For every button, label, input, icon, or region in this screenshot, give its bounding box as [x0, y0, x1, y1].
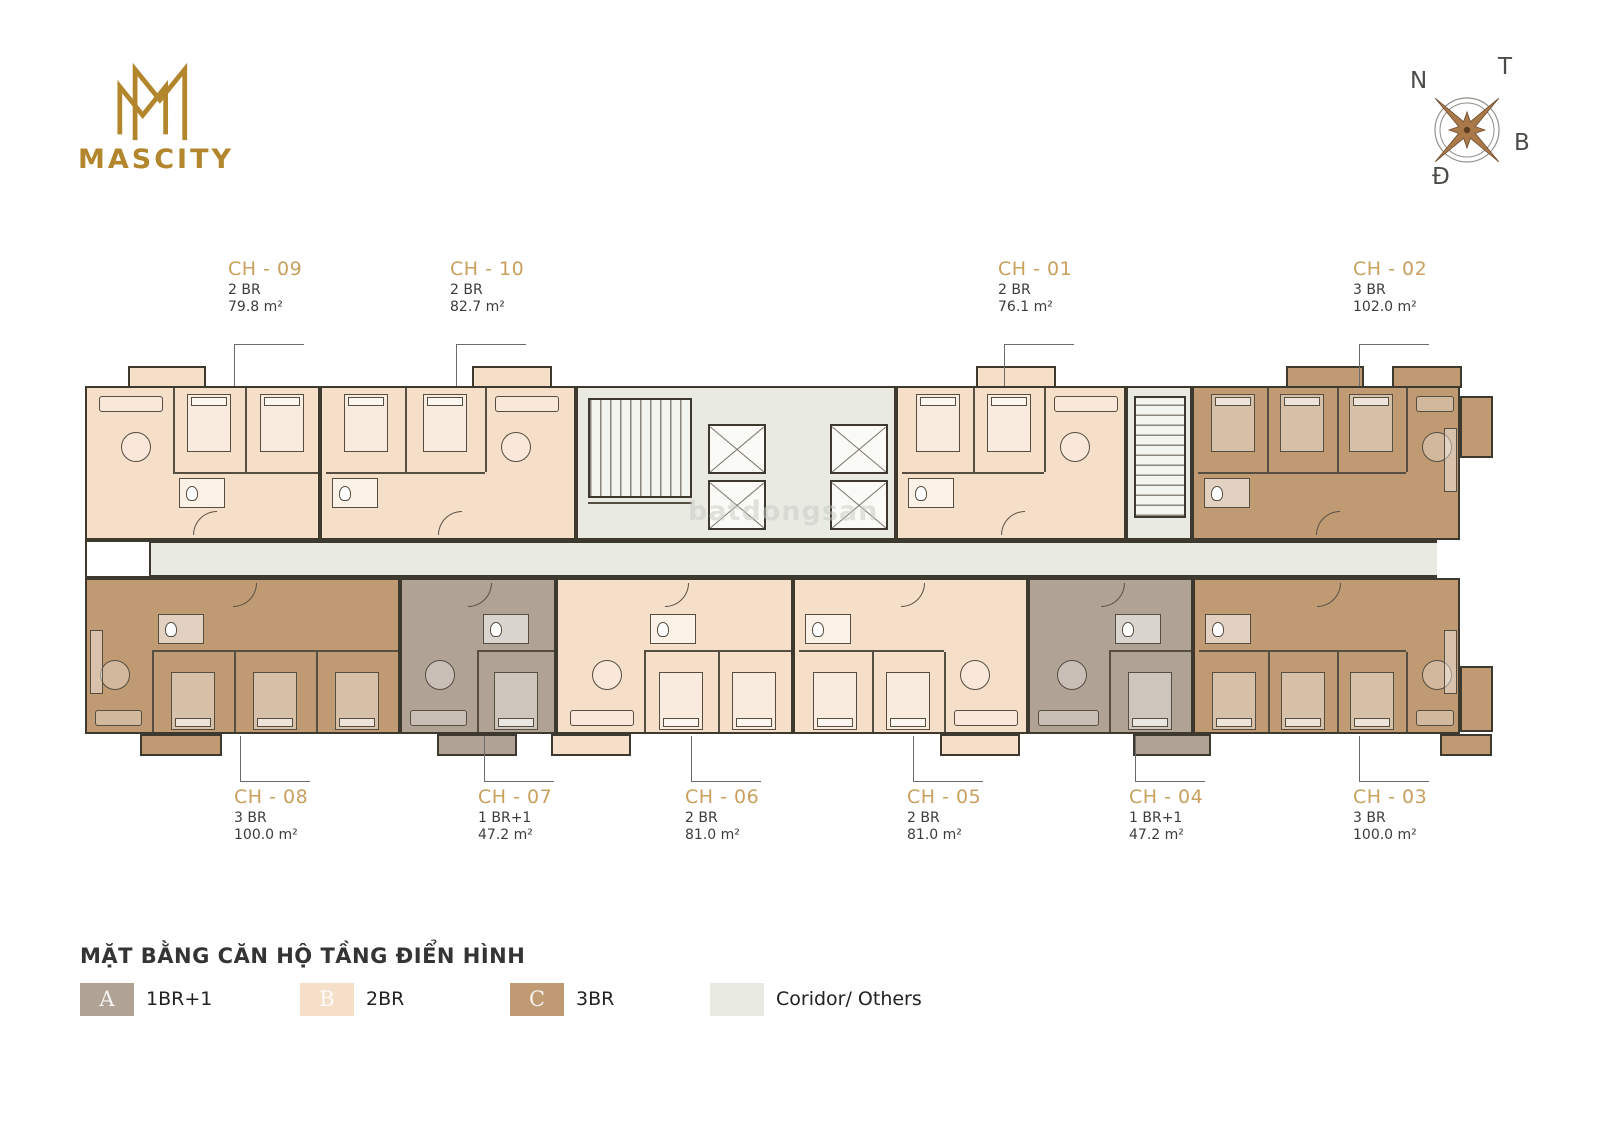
bed-symbol	[253, 672, 297, 730]
leader-line	[456, 344, 526, 386]
partition	[1337, 652, 1339, 734]
bed-pillow	[257, 718, 293, 727]
brand-monogram-icon	[108, 58, 208, 142]
unit-id: CH - 05	[907, 786, 981, 810]
unit-area: 82.7 m²	[450, 299, 524, 317]
unit-bedrooms: 1 BR+1	[1129, 810, 1203, 828]
sofa-symbol	[1416, 710, 1454, 726]
bathroom-symbol	[1205, 614, 1251, 644]
apartment-ch03	[1193, 578, 1460, 734]
legend-swatch: A	[80, 983, 134, 1016]
partition	[316, 652, 318, 734]
door-arc	[1316, 511, 1340, 535]
leader-line	[234, 344, 304, 386]
dining-table-symbol	[501, 432, 531, 462]
door-arc	[468, 583, 492, 607]
bed-pillow	[175, 718, 211, 727]
compass-label-north: B	[1514, 130, 1530, 156]
bed-symbol	[1281, 672, 1325, 730]
bed-symbol	[1350, 672, 1394, 730]
bed-symbol	[171, 672, 215, 730]
unit-area: 81.0 m²	[907, 827, 981, 845]
bed-symbol	[260, 394, 304, 452]
unit-id: CH - 02	[1353, 258, 1427, 282]
partition	[902, 472, 1044, 474]
bed-symbol	[335, 672, 379, 730]
door-arc	[1101, 583, 1125, 607]
sofa-symbol	[570, 710, 634, 726]
building-floor-plan	[80, 366, 1495, 758]
partition	[485, 388, 487, 472]
bed-pillow	[264, 397, 300, 406]
legend-title: MẶT BẰNG CĂN HỘ TẦNG ĐIỂN HÌNH	[80, 944, 525, 968]
leader-line	[913, 736, 983, 782]
partition	[477, 650, 554, 652]
partition	[477, 652, 479, 734]
bed-symbol	[732, 672, 776, 730]
legend-label: 1BR+1	[146, 988, 212, 1010]
bed-symbol	[813, 672, 857, 730]
corridor	[150, 540, 1437, 578]
partition	[1198, 472, 1406, 474]
bed-pillow	[498, 718, 534, 727]
bed-pillow	[427, 397, 463, 406]
partition	[718, 652, 720, 734]
bed-pillow	[663, 718, 699, 727]
bed-symbol	[1211, 394, 1255, 452]
elevator-shaft	[708, 424, 766, 474]
unit-bedrooms: 2 BR	[228, 282, 302, 300]
door-arc	[665, 583, 689, 607]
partition	[173, 472, 318, 474]
leader-line	[1004, 344, 1074, 386]
unit-bedrooms: 2 BR	[685, 810, 759, 828]
compass-rose: N T B Đ	[1392, 52, 1542, 202]
unit-area: 100.0 m²	[234, 827, 308, 845]
dining-table-symbol	[960, 660, 990, 690]
sofa-symbol	[1054, 396, 1118, 412]
sofa-symbol	[1416, 396, 1454, 412]
unit-label: CH - 052 BR81.0 m²	[907, 786, 981, 845]
partition	[245, 388, 247, 472]
legend-label: 3BR	[576, 988, 614, 1010]
legend-item: B2BR	[300, 982, 404, 1016]
bathroom-symbol	[158, 614, 204, 644]
legend-items: A1BR+1B2BRC3BRCoridor/ Others	[80, 982, 1180, 1022]
unit-label: CH - 033 BR100.0 m²	[1353, 786, 1427, 845]
unit-bedrooms: 2 BR	[998, 282, 1072, 300]
bed-pillow	[1354, 718, 1390, 727]
unit-label: CH - 083 BR100.0 m²	[234, 786, 308, 845]
legend-label: Coridor/ Others	[776, 988, 922, 1010]
dining-table-symbol	[592, 660, 622, 690]
bed-symbol	[659, 672, 703, 730]
dining-table-symbol	[100, 660, 130, 690]
unit-label: CH - 071 BR+147.2 m²	[478, 786, 552, 845]
unit-id: CH - 07	[478, 786, 552, 810]
partition	[1406, 652, 1408, 734]
partition	[1268, 652, 1270, 734]
partition	[588, 502, 692, 504]
partition	[1406, 388, 1408, 472]
kitchen-counter-symbol	[90, 630, 103, 694]
unit-bedrooms: 3 BR	[1353, 810, 1427, 828]
partition	[1109, 650, 1191, 652]
dining-table-symbol	[1057, 660, 1087, 690]
bathroom-symbol	[1115, 614, 1161, 644]
door-arc	[1001, 511, 1025, 535]
unit-area: 102.0 m²	[1353, 299, 1427, 317]
legend-item: A1BR+1	[80, 982, 212, 1016]
bed-pillow	[1285, 718, 1321, 727]
bed-symbol	[1128, 672, 1172, 730]
legend-swatch	[710, 983, 764, 1016]
partition	[152, 650, 398, 652]
partition	[973, 388, 975, 472]
balcony	[551, 734, 631, 756]
apartment-ch08	[85, 578, 400, 734]
partition	[644, 652, 646, 734]
unit-label: CH - 023 BR102.0 m²	[1353, 258, 1427, 317]
balcony	[128, 366, 206, 388]
secondary-stairwell-block	[1126, 386, 1192, 540]
watermark: batdongsan	[688, 496, 878, 527]
sofa-symbol	[95, 710, 142, 726]
leader-line	[240, 736, 310, 782]
door-arc	[901, 583, 925, 607]
partition	[173, 388, 175, 472]
leader-line	[1359, 344, 1429, 386]
bed-symbol	[987, 394, 1031, 452]
sofa-symbol	[495, 396, 559, 412]
bed-pillow	[191, 397, 227, 406]
partition	[1199, 650, 1406, 652]
bed-symbol	[187, 394, 231, 452]
partition	[152, 652, 154, 734]
unit-id: CH - 06	[685, 786, 759, 810]
unit-id: CH - 10	[450, 258, 524, 282]
bed-pillow	[348, 397, 384, 406]
dining-table-symbol	[121, 432, 151, 462]
apartment-ch07	[400, 578, 556, 734]
sofa-symbol	[410, 710, 467, 726]
unit-bedrooms: 2 BR	[450, 282, 524, 300]
legend-swatch: C	[510, 983, 564, 1016]
bed-pillow	[339, 718, 375, 727]
bed-symbol	[344, 394, 388, 452]
apartment-ch06	[556, 578, 793, 734]
unit-id: CH - 09	[228, 258, 302, 282]
door-arc	[1317, 583, 1341, 607]
bed-pillow	[890, 718, 926, 727]
unit-label: CH - 062 BR81.0 m²	[685, 786, 759, 845]
bathroom-symbol	[483, 614, 529, 644]
unit-area: 79.8 m²	[228, 299, 302, 317]
leader-line	[1359, 736, 1429, 782]
unit-label: CH - 041 BR+147.2 m²	[1129, 786, 1203, 845]
balcony	[1286, 366, 1364, 388]
legend-item: C3BR	[510, 982, 614, 1016]
partition	[1044, 388, 1046, 472]
compass-label-south: N	[1410, 68, 1427, 94]
sofa-symbol	[99, 396, 163, 412]
partition	[234, 652, 236, 734]
legend-label: 2BR	[366, 988, 404, 1010]
bathroom-symbol	[179, 478, 225, 508]
legend-swatch-letter: C	[529, 987, 545, 1011]
bathroom-symbol	[1204, 478, 1250, 508]
unit-id: CH - 03	[1353, 786, 1427, 810]
partition	[326, 472, 485, 474]
partition	[872, 652, 874, 734]
unit-area: 47.2 m²	[1129, 827, 1203, 845]
bed-symbol	[1280, 394, 1324, 452]
brand-logo: MASCITY	[78, 58, 298, 178]
elevator-shaft	[830, 424, 888, 474]
bed-pillow	[1132, 718, 1168, 727]
unit-label: CH - 102 BR82.7 m²	[450, 258, 524, 317]
corridor-end-room	[85, 540, 151, 578]
apartment-ch02	[1192, 386, 1460, 540]
unit-bedrooms: 1 BR+1	[478, 810, 552, 828]
apartment-ch09	[85, 386, 320, 540]
apartment-ch05	[793, 578, 1028, 734]
bathroom-symbol	[908, 478, 954, 508]
apartment-ch04	[1028, 578, 1193, 734]
compass-label-east: Đ	[1432, 164, 1450, 190]
legend-swatch-letter: A	[99, 987, 114, 1011]
partition	[1337, 388, 1339, 472]
bed-pillow	[991, 397, 1027, 406]
unit-bedrooms: 3 BR	[234, 810, 308, 828]
bed-symbol	[423, 394, 467, 452]
unit-id: CH - 08	[234, 786, 308, 810]
sofa-symbol	[954, 710, 1018, 726]
stairwell	[588, 398, 692, 498]
legend-swatch: B	[300, 983, 354, 1016]
bed-symbol	[1212, 672, 1256, 730]
balcony	[140, 734, 222, 756]
leader-line	[1135, 736, 1205, 782]
dining-table-symbol	[425, 660, 455, 690]
bed-symbol	[886, 672, 930, 730]
unit-area: 76.1 m²	[998, 299, 1072, 317]
bed-symbol	[916, 394, 960, 452]
unit-label: CH - 092 BR79.8 m²	[228, 258, 302, 317]
bed-symbol	[1349, 394, 1393, 452]
stairwell	[1134, 396, 1186, 518]
unit-area: 100.0 m²	[1353, 827, 1427, 845]
apartment-ch10	[320, 386, 576, 540]
bed-pillow	[1216, 718, 1252, 727]
bed-pillow	[817, 718, 853, 727]
bathroom-symbol	[650, 614, 696, 644]
legend-swatch-letter: B	[319, 987, 334, 1011]
unit-id: CH - 01	[998, 258, 1072, 282]
door-arc	[193, 511, 217, 535]
balcony	[1460, 666, 1493, 732]
kitchen-counter-symbol	[1444, 630, 1457, 694]
unit-id: CH - 04	[1129, 786, 1203, 810]
bathroom-symbol	[805, 614, 851, 644]
unit-area: 47.2 m²	[478, 827, 552, 845]
door-arc	[438, 511, 462, 535]
door-arc	[233, 583, 257, 607]
bathroom-symbol	[332, 478, 378, 508]
kitchen-counter-symbol	[1444, 428, 1457, 492]
sofa-symbol	[1038, 710, 1099, 726]
bed-pillow	[1284, 397, 1320, 406]
unit-area: 81.0 m²	[685, 827, 759, 845]
partition	[405, 388, 407, 472]
bed-symbol	[494, 672, 538, 730]
bed-pillow	[1353, 397, 1389, 406]
partition	[944, 652, 946, 734]
leader-line	[691, 736, 761, 782]
partition	[1109, 652, 1111, 734]
legend-item: Coridor/ Others	[710, 982, 922, 1016]
dining-table-symbol	[1060, 432, 1090, 462]
compass-label-west: T	[1498, 54, 1512, 80]
bed-pillow	[1215, 397, 1251, 406]
unit-bedrooms: 3 BR	[1353, 282, 1427, 300]
bed-pillow	[736, 718, 772, 727]
unit-label: CH - 012 BR76.1 m²	[998, 258, 1072, 317]
balcony	[1460, 396, 1493, 458]
bed-pillow	[920, 397, 956, 406]
apartment-ch01	[896, 386, 1126, 540]
leader-line	[484, 736, 554, 782]
floor-plan-page: MASCITY N T B Đ CH - 092 BR79.8 m²CH - 1…	[0, 0, 1600, 1131]
unit-bedrooms: 2 BR	[907, 810, 981, 828]
brand-name: MASCITY	[78, 144, 234, 175]
balcony	[1440, 734, 1492, 756]
partition	[1267, 388, 1269, 472]
